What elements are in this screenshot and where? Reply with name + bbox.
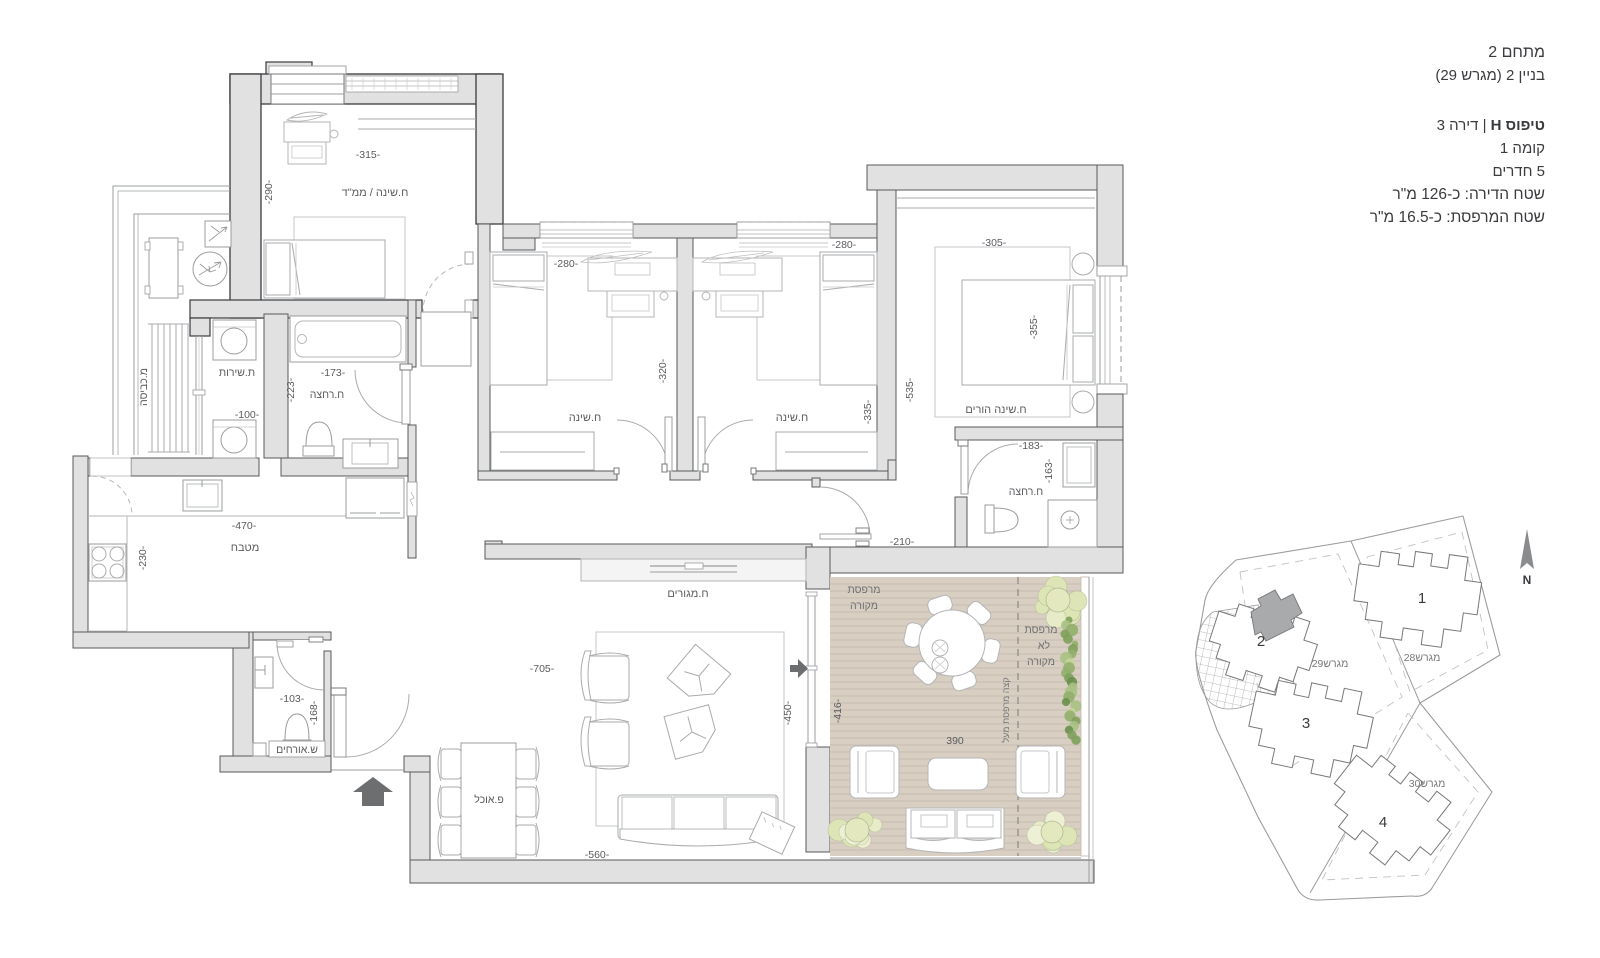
svg-text:-290-: -290- [263, 179, 275, 204]
svg-text:-560-: -560- [585, 849, 610, 861]
svg-text:-305-: -305- [982, 237, 1007, 249]
svg-text:ח.רחצה: ח.רחצה [310, 389, 345, 401]
svg-text:-416-: -416- [832, 698, 844, 723]
svg-text:מרפסת: מרפסת [1025, 624, 1058, 636]
svg-text:-470-: -470- [232, 520, 257, 532]
svg-text:קומה 1: קומה 1 [1500, 140, 1545, 157]
svg-text:שטח הדירה: כ-126 מ"ר: שטח הדירה: כ-126 מ"ר [1392, 186, 1545, 203]
svg-text:מקורה: מקורה [1027, 656, 1055, 668]
svg-text:מגרש28: מגרש28 [1404, 652, 1441, 664]
svg-text:-280-: -280- [554, 258, 579, 270]
svg-text:-223-: -223- [285, 377, 297, 402]
svg-text:בניין 2 (מגרש 29): בניין 2 (מגרש 29) [1435, 67, 1545, 84]
svg-text:-335-: -335- [862, 399, 874, 424]
svg-text:-320-: -320- [657, 358, 669, 383]
svg-text:-355-: -355- [1028, 314, 1040, 339]
svg-text:-230-: -230- [137, 545, 149, 570]
svg-text:פ.אוכל: פ.אוכל [474, 794, 504, 806]
svg-text:3: 3 [1302, 715, 1310, 732]
svg-text:-315-: -315- [356, 149, 381, 161]
svg-text:-280-: -280- [832, 239, 857, 251]
svg-text:ת.שירות: ת.שירות [219, 367, 255, 379]
svg-text:4: 4 [1379, 814, 1387, 831]
svg-text:-173-: -173- [321, 367, 346, 379]
svg-text:מגרש29: מגרש29 [1312, 658, 1349, 670]
svg-text:-183-: -183- [1019, 440, 1044, 452]
svg-text:ש.אורחים: ש.אורחים [276, 744, 318, 756]
svg-text:-100-: -100- [235, 409, 260, 421]
svg-text:ח.מגורים: ח.מגורים [667, 588, 708, 600]
svg-text:-535-: -535- [904, 377, 916, 402]
svg-text:ח.שינה: ח.שינה [569, 412, 601, 424]
svg-text:טיפוס H | דירה 3: טיפוס H | דירה 3 [1437, 117, 1545, 134]
svg-text:מטבח: מטבח [231, 542, 260, 554]
svg-text:קצה מרפסת מעל: קצה מרפסת מעל [1001, 677, 1011, 742]
svg-text:-705-: -705- [530, 663, 555, 675]
svg-text:שטח המרפסת: כ-16.5 מ"ר: שטח המרפסת: כ-16.5 מ"ר [1370, 209, 1545, 226]
svg-text:N: N [1523, 573, 1532, 587]
svg-text:מגרש30: מגרש30 [1409, 778, 1446, 790]
svg-text:לא: לא [1038, 640, 1051, 652]
svg-text:2: 2 [1257, 633, 1265, 650]
svg-text:מתחם 2: מתחם 2 [1488, 44, 1545, 61]
svg-text:5 חדרים: 5 חדרים [1493, 163, 1545, 180]
svg-text:-163-: -163- [1043, 458, 1055, 483]
svg-text:-210-: -210- [890, 536, 915, 548]
svg-text:מקורה: מקורה [850, 600, 878, 612]
svg-text:1: 1 [1418, 590, 1426, 607]
svg-text:מרפסת: מרפסת [848, 584, 881, 596]
svg-text:-168-: -168- [308, 700, 320, 725]
svg-text:ח.שינה: ח.שינה [776, 412, 808, 424]
svg-text:ח.שינה / ממ"ד: ח.שינה / ממ"ד [342, 187, 409, 199]
svg-text:מ.כביסה: מ.כביסה [138, 368, 150, 406]
svg-text:-103-: -103- [280, 693, 305, 705]
svg-text:ח.רחצה: ח.רחצה [1009, 486, 1044, 498]
svg-text:390: 390 [946, 735, 964, 747]
svg-text:ח.שינה הורים: ח.שינה הורים [965, 404, 1026, 416]
svg-text:-450-: -450- [782, 700, 794, 725]
